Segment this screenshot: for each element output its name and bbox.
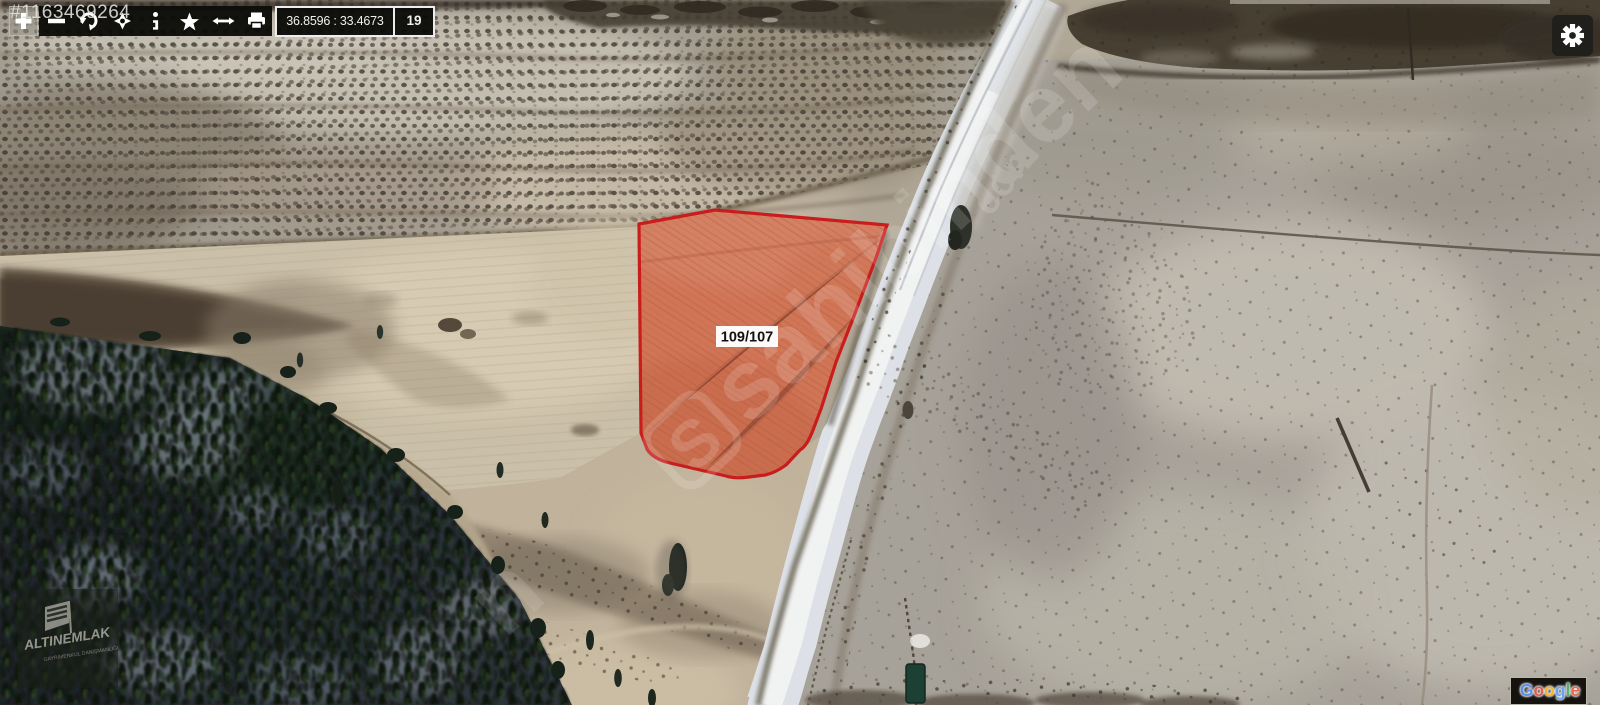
svg-text:109/107: 109/107 bbox=[721, 330, 773, 346]
